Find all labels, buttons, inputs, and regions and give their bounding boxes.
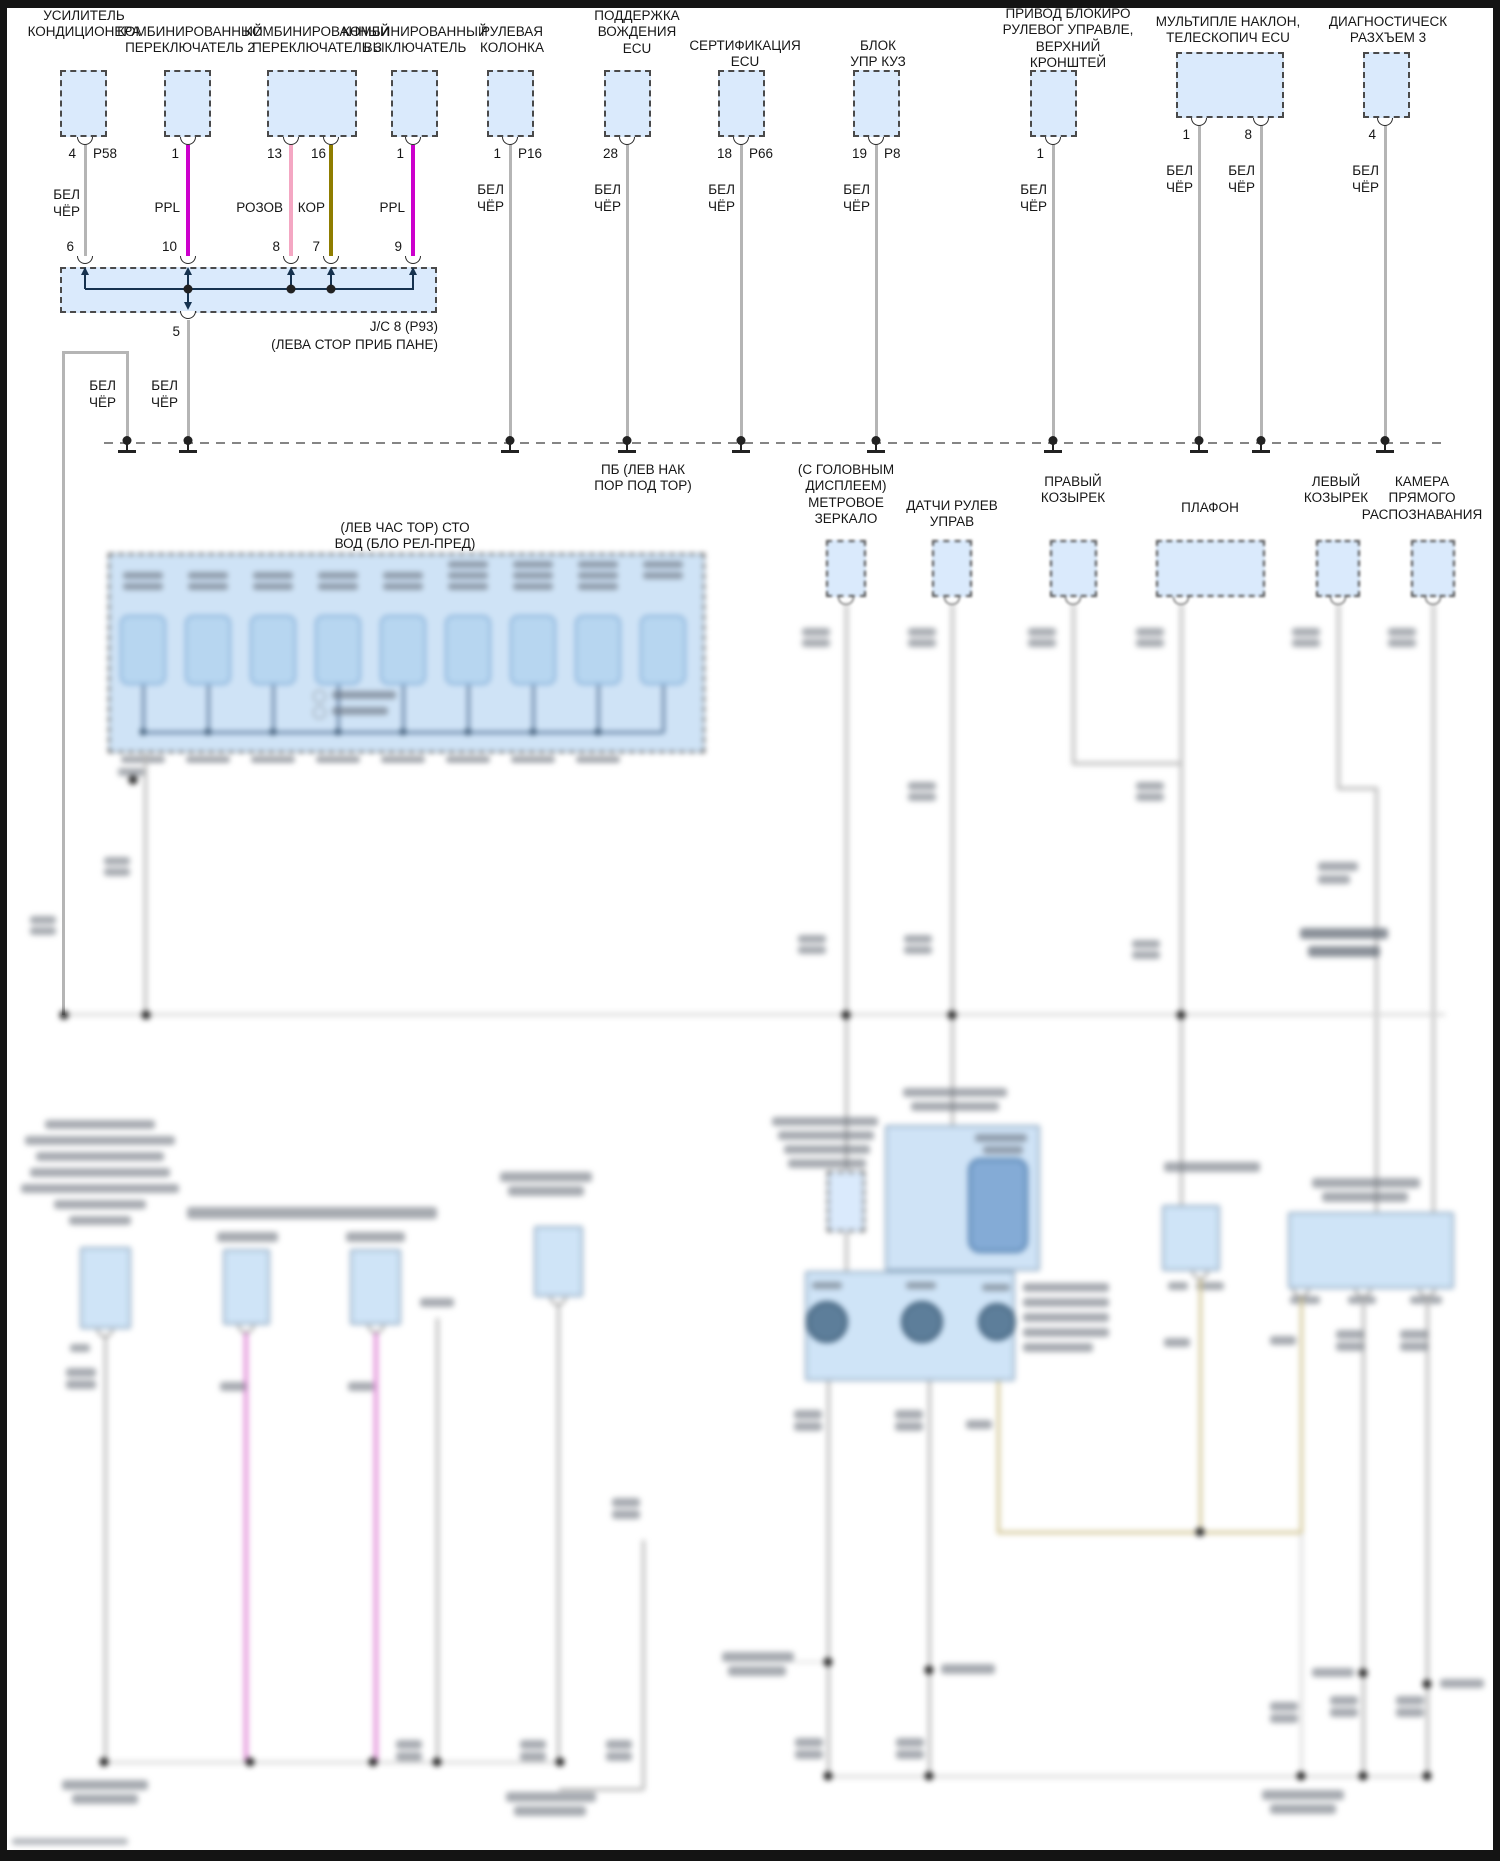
blur-text <box>1388 639 1416 647</box>
blur-text <box>983 1146 1023 1154</box>
blur-text <box>520 1752 546 1761</box>
blur-text <box>1270 1714 1298 1723</box>
blur-text <box>1396 1708 1424 1717</box>
connector-arc <box>238 1325 254 1333</box>
splice-dot <box>246 1758 255 1767</box>
blur-text <box>1300 928 1388 939</box>
blur-text <box>1136 639 1164 647</box>
blur-text <box>396 1740 422 1749</box>
blur-text <box>722 1652 794 1662</box>
wire <box>951 604 954 1125</box>
wire <box>1426 1297 1429 1776</box>
blur-text <box>508 1186 584 1196</box>
connector-box <box>1162 1205 1220 1271</box>
wire <box>827 1381 830 1776</box>
blur-text <box>1132 940 1160 948</box>
blur-text <box>1164 1338 1190 1347</box>
wire <box>845 604 848 1171</box>
blur-text <box>1023 1328 1109 1337</box>
wire <box>559 1788 643 1791</box>
blur-text <box>187 1207 437 1219</box>
connector-arc <box>550 1297 566 1305</box>
blur-text <box>1136 782 1164 790</box>
blur-text <box>1023 1298 1109 1307</box>
option-dot <box>1423 1680 1432 1689</box>
connector-arc <box>1192 1271 1208 1279</box>
blur-text <box>70 1344 90 1352</box>
blur-text <box>606 1752 632 1761</box>
blur-text <box>1312 1178 1420 1188</box>
splice-dot <box>1297 1772 1306 1781</box>
blur-text <box>30 916 56 924</box>
blur-text <box>788 1159 866 1168</box>
blur-text <box>798 935 826 943</box>
wire <box>1300 1533 1303 1776</box>
lamp-circle <box>901 1301 943 1343</box>
blur-text <box>25 1136 175 1145</box>
blur-text <box>1440 1679 1484 1688</box>
junction-dot <box>1177 1011 1186 1020</box>
connector-arc <box>368 1325 384 1333</box>
blur-text <box>1318 875 1350 884</box>
lamp-circle <box>806 1301 848 1343</box>
blur-text <box>606 1740 632 1749</box>
wire <box>1072 604 1075 764</box>
blur-text <box>728 1666 786 1676</box>
blur-text <box>1330 1696 1358 1705</box>
blur-text <box>911 1102 999 1111</box>
wire <box>1432 604 1435 1212</box>
blur-text <box>982 1284 1010 1291</box>
blur-text <box>895 1422 923 1431</box>
blur-text <box>348 1382 374 1391</box>
splice-dot <box>556 1758 565 1767</box>
blur-text <box>941 1664 995 1674</box>
blur-text <box>895 1410 923 1419</box>
blur-text <box>1262 1790 1344 1800</box>
blur-text <box>1336 1330 1364 1339</box>
wire <box>1180 604 1183 1205</box>
blur-text <box>778 1131 874 1140</box>
blur-text <box>420 1298 454 1307</box>
connector-box <box>223 1249 270 1325</box>
blur-text <box>1023 1283 1109 1292</box>
blur-text <box>1136 628 1164 636</box>
option-dot <box>925 1666 934 1675</box>
blur-text <box>1400 1342 1428 1351</box>
wire <box>1337 787 1377 790</box>
wire <box>557 1305 560 1762</box>
blur-text <box>72 1794 138 1804</box>
splice-line <box>825 1775 1430 1778</box>
blur-text <box>1312 1668 1354 1677</box>
blur-text <box>1132 951 1160 959</box>
blur-text <box>1270 1804 1336 1814</box>
blur-text <box>514 1806 586 1816</box>
frame-left <box>0 0 7 1861</box>
blur-text <box>903 1088 1007 1097</box>
main-bus <box>63 1013 1445 1016</box>
blur-text <box>1396 1696 1424 1705</box>
junction-dot <box>142 1011 151 1020</box>
blur-text <box>798 946 826 954</box>
wire <box>104 1337 107 1762</box>
splice-dot <box>824 1772 833 1781</box>
wire-khaki <box>1300 1297 1303 1533</box>
connector-box <box>350 1249 401 1325</box>
blur-text <box>45 1120 155 1129</box>
blur-text <box>220 1382 246 1391</box>
blur-text <box>104 868 130 876</box>
junction-dot <box>842 1011 851 1020</box>
blur-text <box>506 1792 596 1802</box>
blur-text <box>1290 1296 1320 1304</box>
blur-text <box>1023 1343 1093 1352</box>
blur-text <box>896 1738 924 1747</box>
blur-text <box>896 1750 924 1759</box>
blur-text <box>1164 1162 1260 1172</box>
blur-text <box>66 1380 96 1389</box>
splice-dot <box>1359 1772 1368 1781</box>
blur-text <box>772 1117 878 1126</box>
wiring-diagram-page: УСИЛИТЕЛЬ КОНДИЦИОНЕРА КОМБИНИРОВАННЫЙ П… <box>0 0 1500 1861</box>
blur-text <box>1270 1702 1298 1711</box>
wire <box>928 1381 931 1776</box>
blower-motor <box>968 1158 1028 1253</box>
blur-text <box>21 1184 179 1193</box>
connector-arc <box>97 1329 113 1337</box>
splice-line <box>104 1761 560 1764</box>
blur-text <box>36 1152 164 1161</box>
blur-text <box>908 782 936 790</box>
blur-text <box>908 628 936 636</box>
wire <box>436 1318 439 1762</box>
junction-dot <box>60 1011 69 1020</box>
blur-text <box>30 1168 170 1177</box>
wire-khaki <box>1199 1279 1202 1533</box>
blur-text <box>1270 1336 1296 1345</box>
wire <box>1337 604 1340 789</box>
blur-text <box>104 857 130 865</box>
wire-pink <box>374 1333 378 1762</box>
watermark <box>12 1838 128 1845</box>
blur-text <box>802 639 830 647</box>
blur-text <box>1336 1342 1364 1351</box>
blur-text <box>784 1145 870 1154</box>
blur-text <box>1136 793 1164 801</box>
blur-text <box>904 935 932 943</box>
blur-text <box>500 1172 592 1182</box>
blur-text <box>1388 628 1416 636</box>
wire-khaki <box>997 1381 1000 1533</box>
camera-unit-box <box>1288 1212 1454 1289</box>
blur-text <box>54 1200 146 1209</box>
blur-text <box>802 628 830 636</box>
wire <box>845 1232 848 1271</box>
blur-text <box>906 1282 936 1289</box>
wire-khaki <box>997 1531 1303 1534</box>
blur-text <box>812 1282 842 1289</box>
blur-text <box>795 1750 823 1759</box>
junction-dot <box>948 1011 957 1020</box>
wire <box>1375 787 1378 1212</box>
splice-dot <box>925 1772 934 1781</box>
blur-text <box>396 1752 422 1761</box>
blur-text <box>1028 639 1056 647</box>
wire-pink <box>244 1333 248 1762</box>
blur-text <box>1322 1192 1408 1202</box>
connector-box <box>534 1226 583 1297</box>
blur-text <box>1308 946 1380 957</box>
frame-bottom <box>0 1850 1500 1861</box>
blur-text <box>1292 628 1320 636</box>
blur-text <box>795 1738 823 1747</box>
connector-box-dashed <box>827 1171 865 1232</box>
frame-top <box>0 0 1500 8</box>
blur-text <box>346 1232 405 1242</box>
lower-blurred-layer <box>0 0 1500 1861</box>
blur-text <box>908 793 936 801</box>
blur-text <box>520 1740 546 1749</box>
connector-box <box>80 1247 131 1329</box>
wire <box>1362 1297 1365 1776</box>
blur-text <box>217 1232 278 1242</box>
blur-text <box>1318 862 1358 871</box>
blur-text <box>908 639 936 647</box>
splice-dot <box>100 1758 109 1767</box>
wire <box>1072 762 1182 765</box>
wire <box>642 1540 645 1790</box>
blur-text <box>975 1134 1027 1142</box>
blur-text <box>1028 628 1056 636</box>
blur-text <box>794 1410 822 1419</box>
splice-dot <box>369 1758 378 1767</box>
junction-dot <box>1196 1528 1205 1537</box>
junction-dot <box>129 776 138 785</box>
option-dot <box>1359 1669 1368 1678</box>
blur-text <box>1168 1282 1188 1290</box>
option-dot <box>824 1658 833 1667</box>
blur-text <box>612 1510 640 1519</box>
blur-text <box>966 1420 992 1429</box>
wire-white-black <box>144 753 147 1015</box>
blur-text <box>1023 1313 1109 1322</box>
blur-text <box>794 1422 822 1431</box>
blur-text <box>62 1780 148 1790</box>
blur-text <box>1330 1708 1358 1717</box>
blur-text <box>30 927 56 935</box>
blur-text <box>66 1368 96 1377</box>
lamp-circle <box>978 1303 1016 1341</box>
blur-text <box>69 1216 131 1225</box>
blur-text <box>1292 639 1320 647</box>
blur-text <box>1400 1330 1428 1339</box>
blur-text <box>904 946 932 954</box>
blur-text <box>612 1498 640 1507</box>
frame-right <box>1493 0 1500 1861</box>
splice-dot <box>433 1758 442 1767</box>
splice-dot <box>1423 1772 1432 1781</box>
